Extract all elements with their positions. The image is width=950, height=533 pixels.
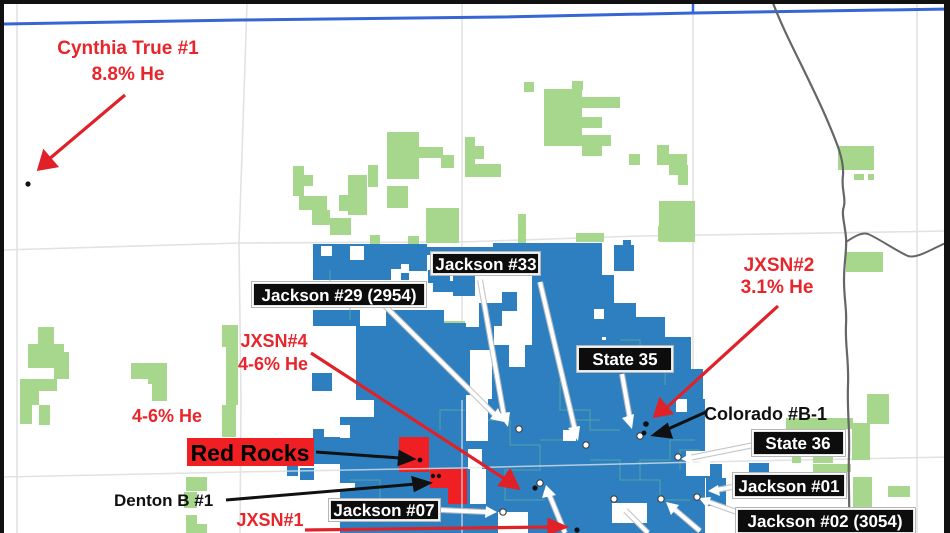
svg-text:JXSN#1: JXSN#1 (236, 510, 303, 530)
svg-text:3.1% He: 3.1% He (741, 277, 814, 298)
svg-text:Denton B #1: Denton B #1 (114, 491, 213, 510)
svg-text:4-6% He: 4-6% He (132, 406, 202, 426)
svg-text:4-6% He: 4-6% He (238, 354, 308, 374)
svg-text:Colorado #B-1: Colorado #B-1 (704, 404, 827, 424)
svg-text:Cynthia True #1: Cynthia True #1 (57, 38, 199, 59)
svg-text:8.8% He: 8.8% He (92, 64, 165, 85)
svg-text:Red Rocks: Red Rocks (191, 440, 310, 466)
svg-text:Jackson #29 (2954): Jackson #29 (2954) (262, 286, 417, 305)
svg-text:Jackson #33: Jackson #33 (435, 255, 536, 274)
svg-text:State 35: State 35 (592, 350, 657, 369)
svg-text:Jackson #02 (3054): Jackson #02 (3054) (748, 512, 903, 531)
svg-text:Jackson #07: Jackson #07 (333, 501, 434, 520)
svg-text:Jackson #01: Jackson #01 (738, 477, 839, 496)
svg-text:JXSN#2: JXSN#2 (744, 255, 815, 276)
svg-text:State 36: State 36 (765, 434, 830, 453)
svg-text:JXSN#4: JXSN#4 (240, 331, 307, 351)
